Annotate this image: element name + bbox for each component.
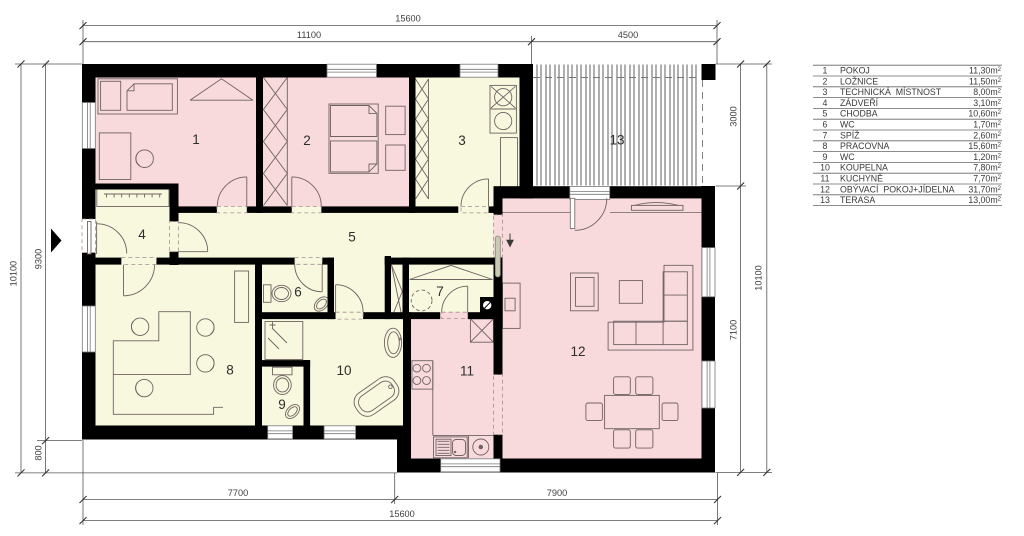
svg-text:11,30m2: 11,30m2 <box>969 66 1002 76</box>
svg-text:13: 13 <box>820 195 830 205</box>
svg-text:7: 7 <box>436 284 444 299</box>
svg-text:7700: 7700 <box>228 488 248 498</box>
svg-text:PRACOVNA: PRACOVNA <box>840 141 890 151</box>
svg-text:2,60m2: 2,60m2 <box>973 130 1001 140</box>
svg-text:SPÍŽ: SPÍŽ <box>840 130 860 140</box>
svg-text:9: 9 <box>278 397 286 412</box>
svg-text:13,00m2: 13,00m2 <box>968 195 1001 205</box>
svg-text:800: 800 <box>34 445 44 460</box>
svg-text:TECHNICKÁ MÍSTNOST: TECHNICKÁ MÍSTNOST <box>840 87 942 97</box>
svg-text:TERASA: TERASA <box>840 195 875 205</box>
svg-text:1,20m2: 1,20m2 <box>973 152 1001 162</box>
svg-text:10: 10 <box>336 363 351 378</box>
svg-text:POKOJ: POKOJ <box>840 66 870 76</box>
svg-text:10,60m2: 10,60m2 <box>968 109 1001 119</box>
svg-text:8: 8 <box>226 363 234 378</box>
svg-text:11100: 11100 <box>297 30 321 40</box>
svg-text:2: 2 <box>303 133 311 148</box>
svg-text:6: 6 <box>294 285 302 300</box>
svg-text:KOUPELNA: KOUPELNA <box>840 163 888 173</box>
svg-text:11: 11 <box>820 174 829 184</box>
svg-text:LOŽNICE: LOŽNICE <box>840 76 878 86</box>
svg-text:3,10m2: 3,10m2 <box>973 98 1001 108</box>
svg-text:10100: 10100 <box>754 265 764 291</box>
svg-text:ZÁDVEŘÍ: ZÁDVEŘÍ <box>840 98 879 108</box>
svg-text:3: 3 <box>458 133 466 148</box>
svg-text:10: 10 <box>820 163 830 173</box>
svg-text:12: 12 <box>570 344 585 359</box>
svg-text:9300: 9300 <box>34 249 44 269</box>
svg-text:3000: 3000 <box>729 106 739 126</box>
svg-text:2: 2 <box>823 76 828 86</box>
svg-text:1,70m2: 1,70m2 <box>973 120 1001 130</box>
svg-text:11,50m2: 11,50m2 <box>969 76 1002 86</box>
svg-text:15600: 15600 <box>395 14 421 24</box>
svg-text:CHODBA: CHODBA <box>840 109 878 119</box>
svg-text:OBÝVACÍ POKOJ+JÍDELNA: OBÝVACÍ POKOJ+JÍDELNA <box>840 184 955 194</box>
svg-text:1: 1 <box>823 66 828 76</box>
svg-text:13: 13 <box>609 133 624 148</box>
svg-text:10100: 10100 <box>9 261 19 287</box>
svg-text:12: 12 <box>820 184 830 194</box>
svg-text:7100: 7100 <box>729 320 739 340</box>
svg-text:KUCHYNĚ: KUCHYNĚ <box>840 174 883 184</box>
svg-text:11: 11 <box>460 364 474 379</box>
svg-text:8,00m2: 8,00m2 <box>973 87 1001 97</box>
svg-text:15600: 15600 <box>389 509 415 519</box>
svg-text:3: 3 <box>823 87 828 97</box>
svg-text:6: 6 <box>823 120 828 130</box>
svg-text:WC: WC <box>840 120 855 130</box>
svg-text:5: 5 <box>823 109 828 119</box>
svg-text:4: 4 <box>138 227 146 242</box>
svg-text:7,70m2: 7,70m2 <box>973 174 1001 184</box>
svg-text:7,80m2: 7,80m2 <box>973 163 1001 173</box>
svg-text:8: 8 <box>823 141 828 151</box>
svg-text:7900: 7900 <box>547 488 567 498</box>
svg-text:4: 4 <box>823 98 828 108</box>
svg-text:4500: 4500 <box>618 30 638 40</box>
svg-text:7: 7 <box>823 130 828 140</box>
svg-text:31,70m2: 31,70m2 <box>968 184 1001 194</box>
svg-text:9: 9 <box>823 152 828 162</box>
svg-text:WC: WC <box>840 152 855 162</box>
svg-text:15,60m2: 15,60m2 <box>968 141 1001 151</box>
svg-text:1: 1 <box>192 132 200 147</box>
svg-text:5: 5 <box>348 230 356 245</box>
